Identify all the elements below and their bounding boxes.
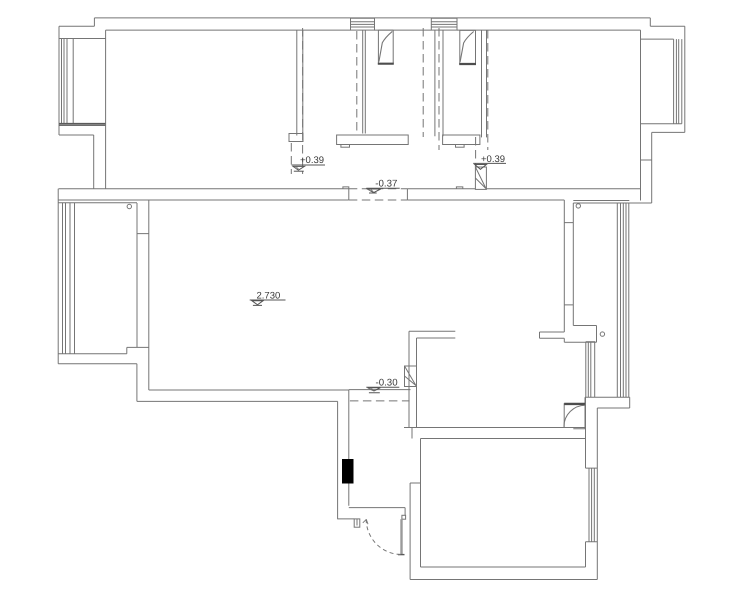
svg-text:+0.39: +0.39 xyxy=(481,154,505,165)
svg-text:-0.30: -0.30 xyxy=(376,378,399,389)
svg-text:+0.39: +0.39 xyxy=(300,155,324,166)
svg-text:-0.37: -0.37 xyxy=(375,178,397,189)
svg-text:2.730: 2.730 xyxy=(257,291,281,302)
